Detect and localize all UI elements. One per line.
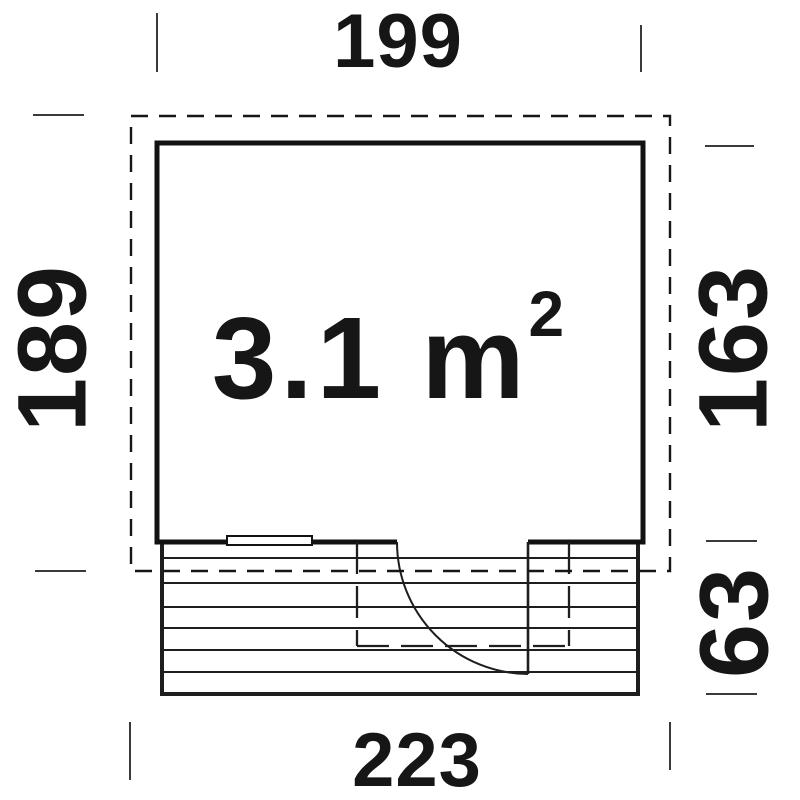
dimension-label-top-width: 199 <box>333 0 463 84</box>
dimension-label-bottom-width: 223 <box>352 718 482 800</box>
door-opening <box>397 534 528 547</box>
floor-plan-page: 199 223 189 163 63 3.1 m2 <box>0 0 800 800</box>
terrace-deck <box>162 542 638 694</box>
floor-plan-drawing: 199 223 189 163 63 3.1 m2 <box>0 0 800 800</box>
dimension-label-right-height: 163 <box>679 264 788 432</box>
area-value: 3.1 m <box>212 293 529 423</box>
dimension-label-left-height: 189 <box>0 264 107 432</box>
dimension-label-terrace-depth: 63 <box>680 566 789 678</box>
area-exponent: 2 <box>529 278 569 350</box>
window-marking <box>227 536 312 545</box>
area-label: 3.1 m2 <box>212 278 568 423</box>
